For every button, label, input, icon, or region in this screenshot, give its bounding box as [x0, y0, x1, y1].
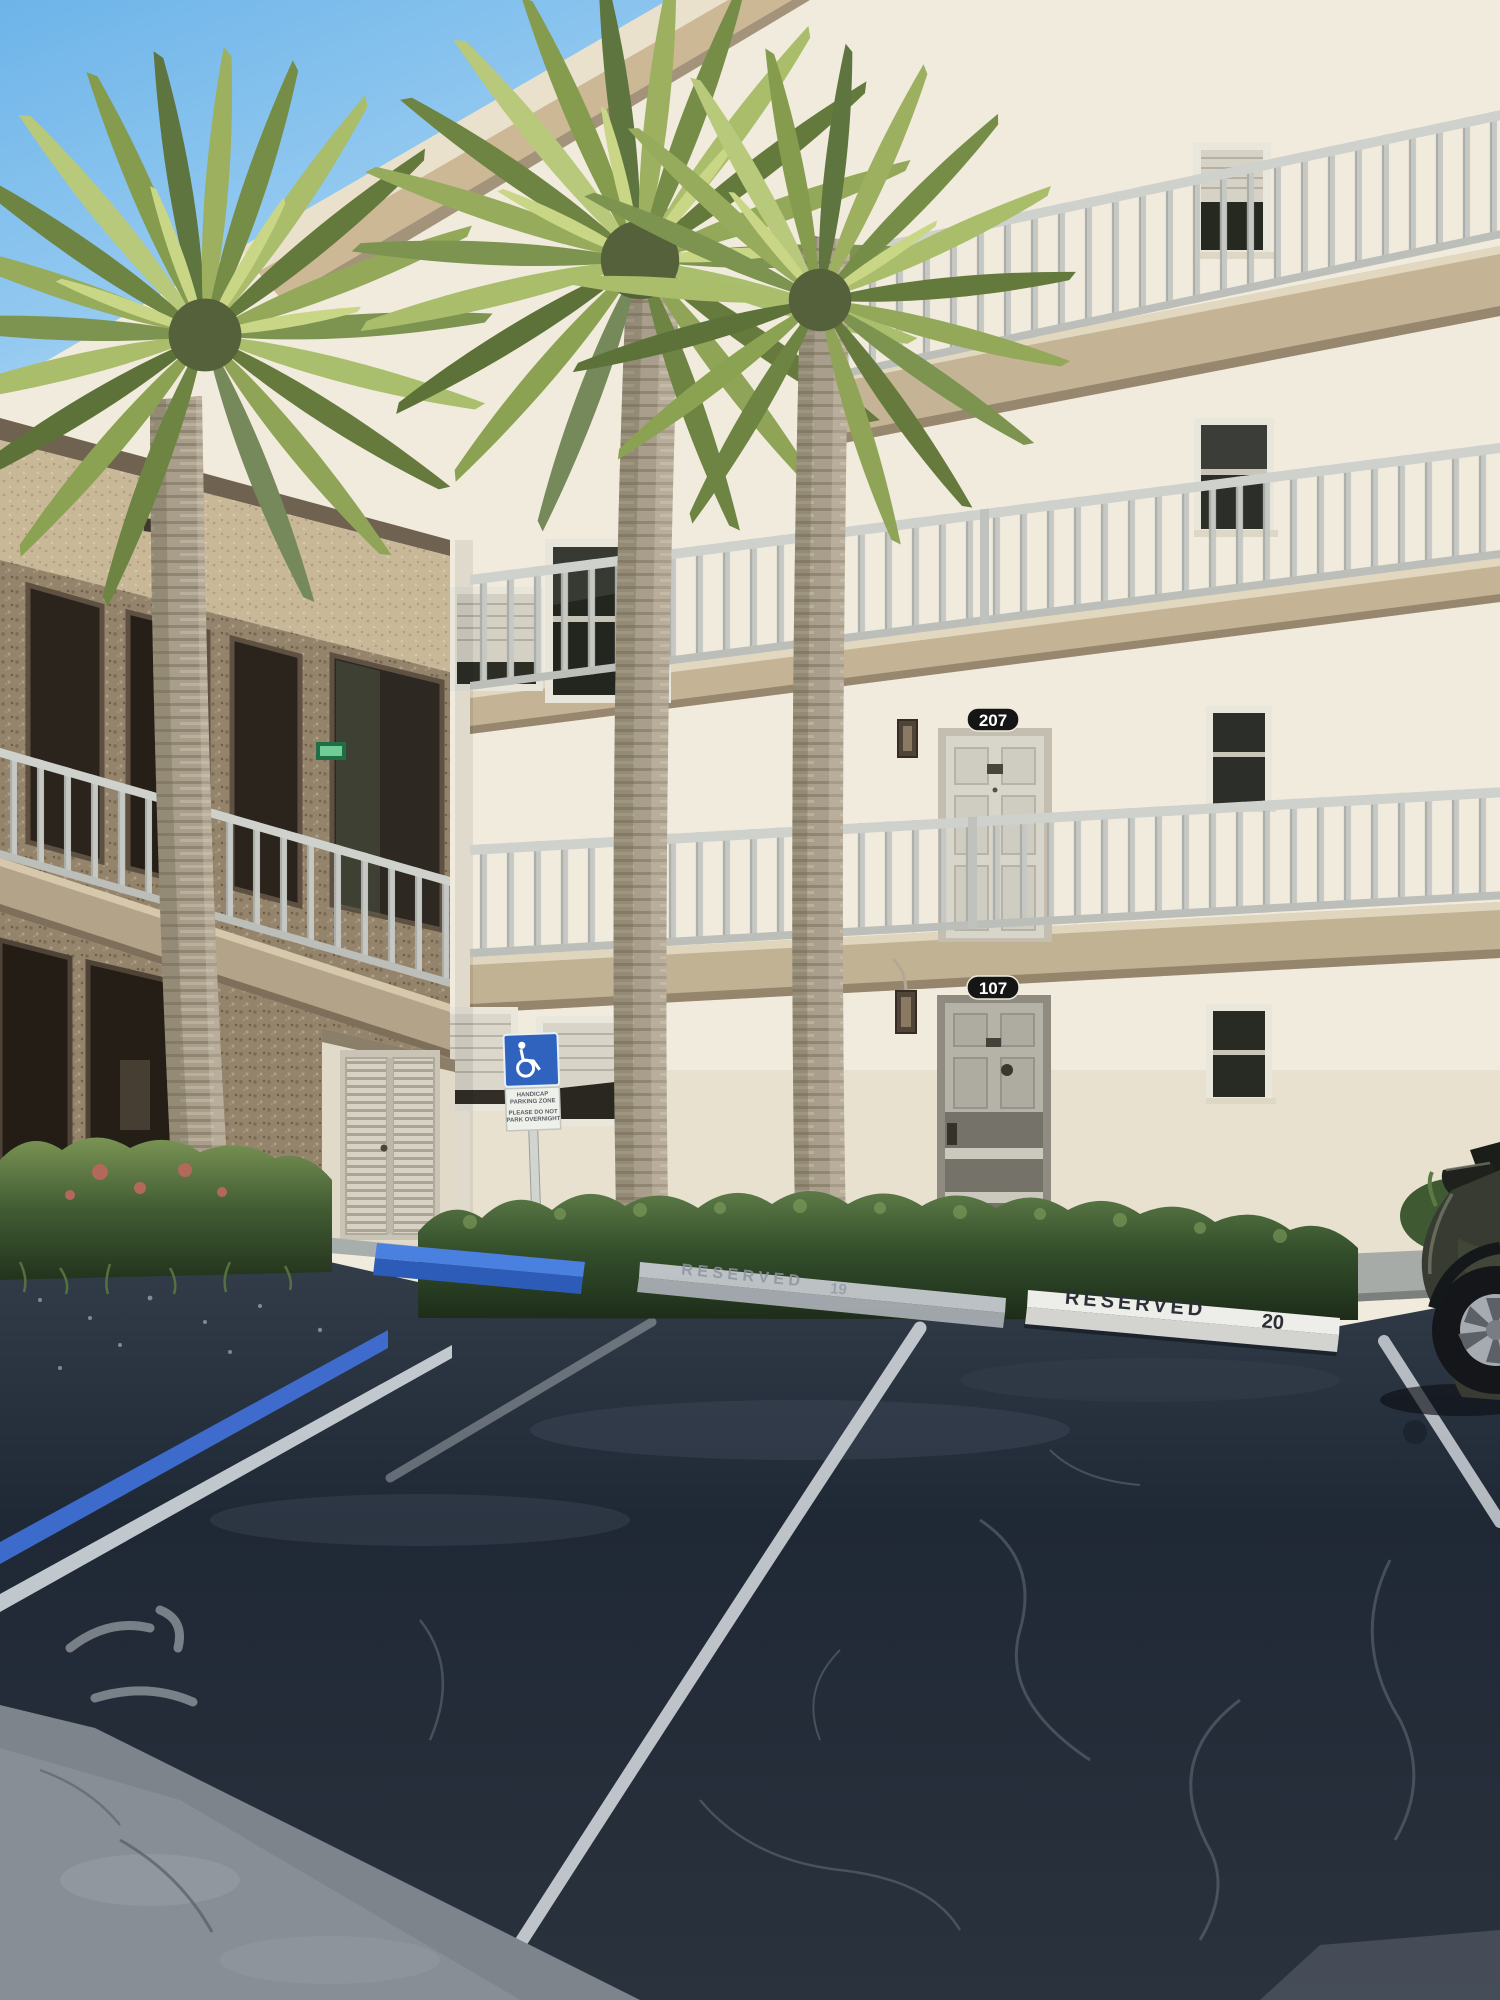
unit-plaque-207: 207 — [967, 708, 1019, 731]
window-ground-right — [1206, 1004, 1276, 1104]
unit-207-number: 207 — [979, 711, 1007, 730]
window-second-floor-right — [1206, 706, 1276, 812]
parking-lot — [0, 1258, 1500, 2000]
condo-exterior-photo: 207 107 — [0, 0, 1500, 2000]
stall-number-19: 19 — [829, 1280, 847, 1299]
unit-plaque-107: 107 — [967, 976, 1019, 999]
left-wing — [0, 418, 455, 1264]
stall-number-20: 20 — [1261, 1310, 1285, 1334]
door-sconce-207 — [898, 720, 917, 757]
svg-text:HANDICAP: HANDICAP — [517, 1091, 549, 1098]
door-107 — [937, 995, 1051, 1223]
louvered-doors — [340, 1050, 440, 1240]
exit-sign — [316, 742, 346, 760]
unit-107-number: 107 — [979, 979, 1007, 998]
hedge-left — [0, 1137, 332, 1294]
